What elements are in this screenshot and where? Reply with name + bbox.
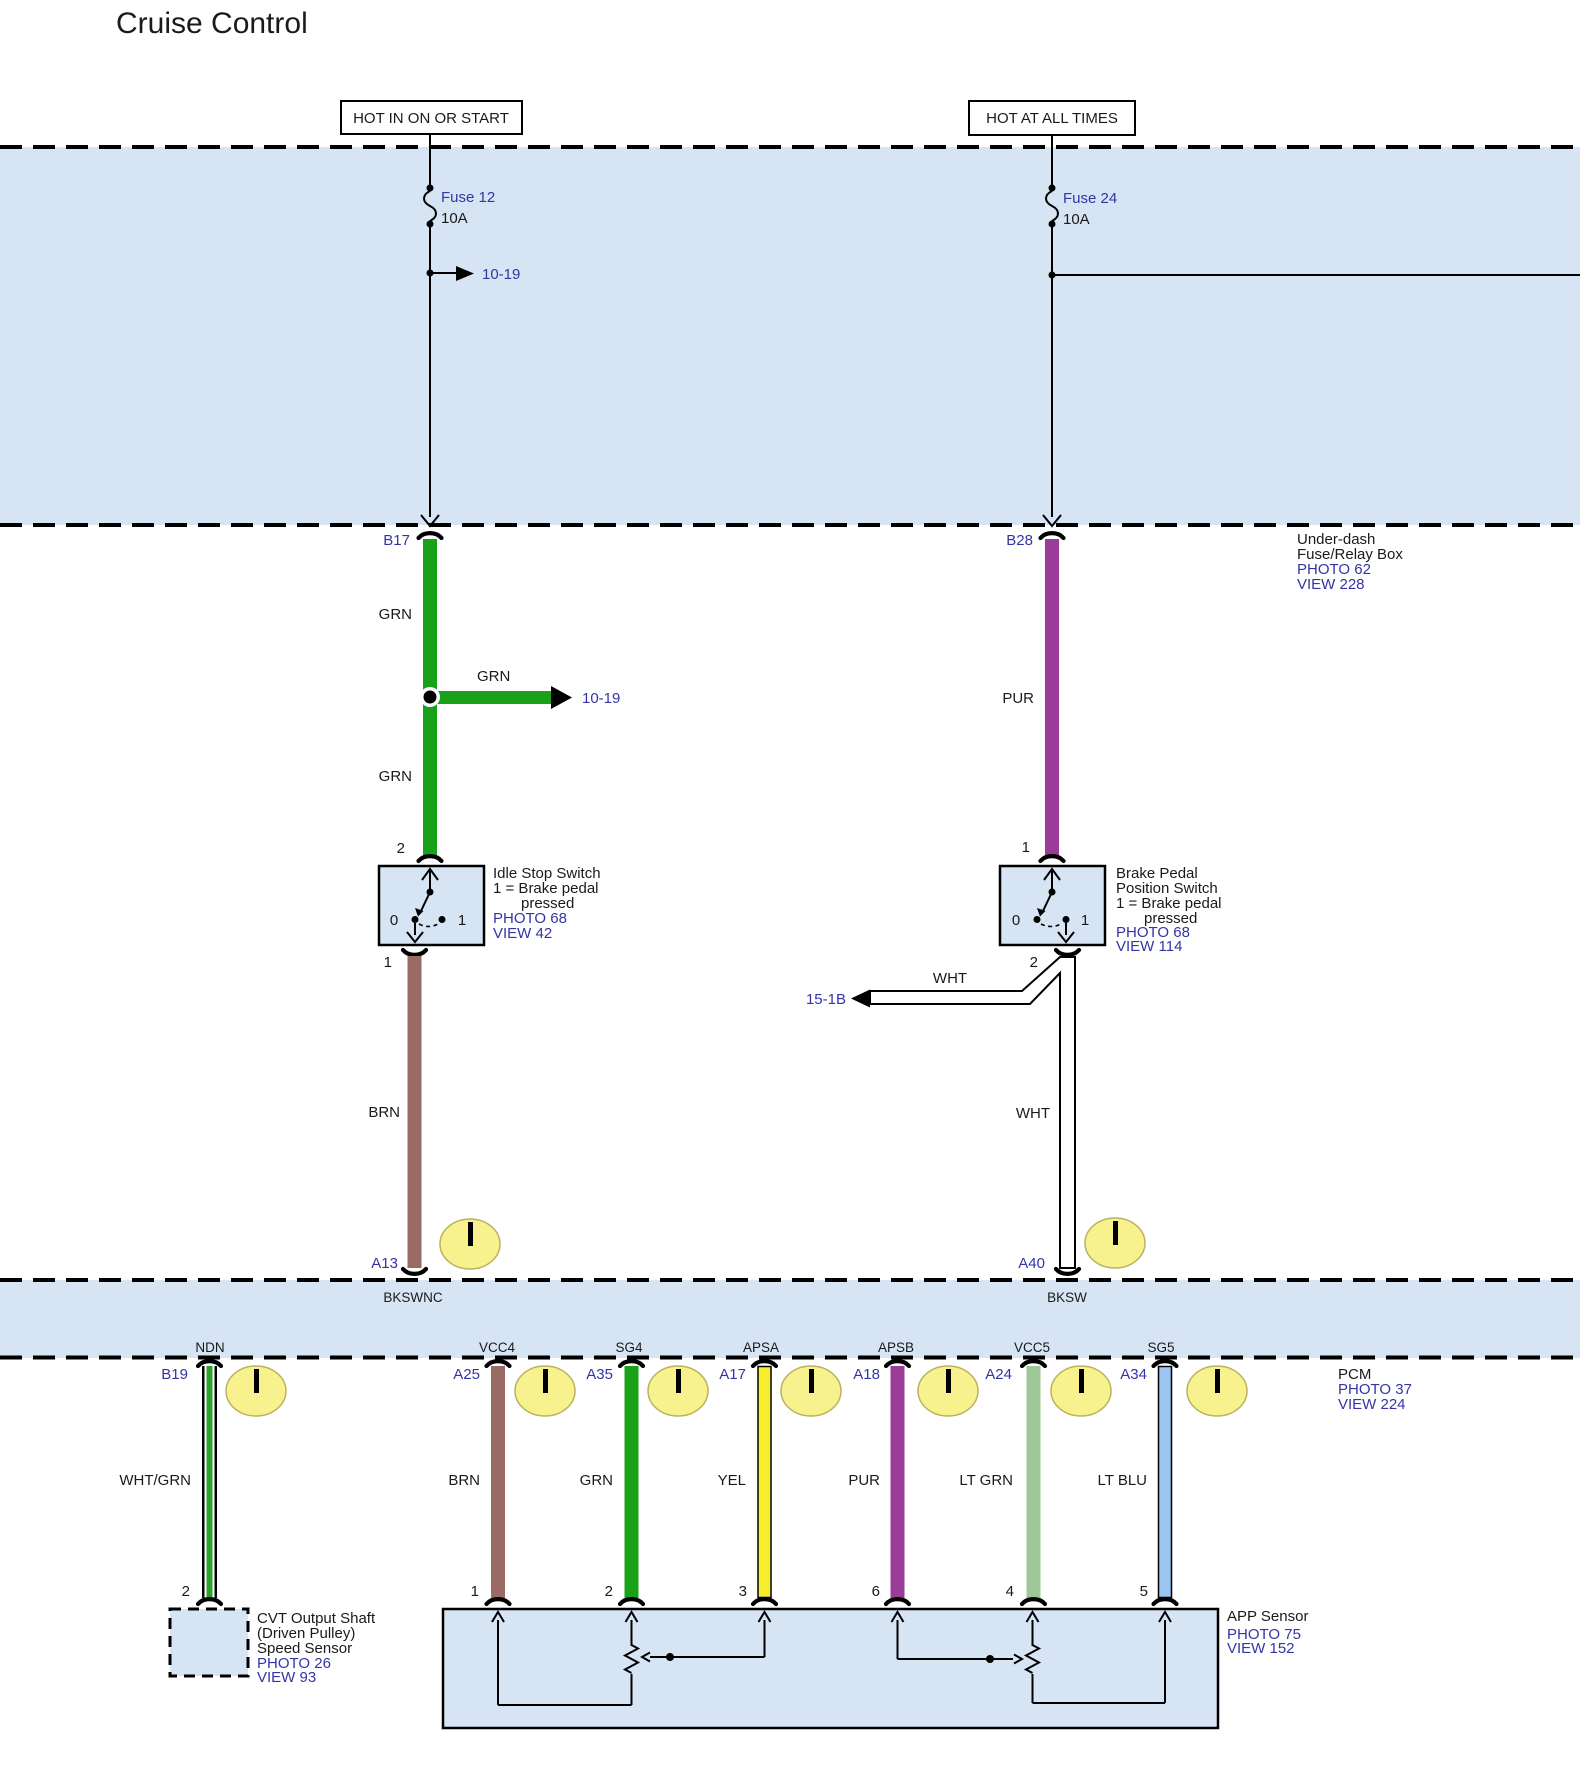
svg-text:1: 1 [471, 1583, 479, 1600]
svg-text:GRN: GRN [379, 768, 412, 785]
svg-text:Fuse 24: Fuse 24 [1063, 190, 1117, 207]
svg-text:APSA: APSA [743, 1340, 779, 1355]
svg-text:BKSWNC: BKSWNC [383, 1290, 443, 1305]
svg-text:A40: A40 [1018, 1255, 1045, 1272]
svg-text:1: 1 [1022, 839, 1030, 856]
svg-text:BKSW: BKSW [1047, 1290, 1087, 1305]
svg-text:PUR: PUR [848, 1472, 880, 1489]
svg-text:WHT/GRN: WHT/GRN [119, 1472, 191, 1489]
svg-text:2: 2 [605, 1583, 613, 1600]
svg-text:1: 1 [384, 954, 392, 971]
svg-text:BRN: BRN [448, 1472, 480, 1489]
svg-text:HOT AT ALL TIMES: HOT AT ALL TIMES [986, 110, 1118, 127]
svg-text:VIEW 114: VIEW 114 [1116, 938, 1182, 955]
svg-text:GRN: GRN [477, 668, 510, 685]
svg-text:NDN: NDN [195, 1340, 224, 1355]
svg-text:A13: A13 [371, 1255, 398, 1272]
svg-text:0: 0 [1012, 912, 1020, 929]
svg-text:0: 0 [390, 912, 398, 929]
svg-text:1: 1 [1081, 912, 1089, 929]
svg-text:B28: B28 [1006, 532, 1033, 549]
svg-text:2: 2 [397, 840, 405, 857]
svg-text:VIEW 224: VIEW 224 [1338, 1396, 1406, 1413]
svg-text:BRN: BRN [368, 1104, 400, 1121]
svg-text:LT GRN: LT GRN [959, 1472, 1013, 1489]
svg-text:15-1B: 15-1B [806, 991, 846, 1008]
svg-text:A34: A34 [1120, 1366, 1147, 1383]
svg-text:Cruise Control: Cruise Control [116, 7, 308, 40]
svg-text:APSB: APSB [878, 1340, 914, 1355]
svg-text:A18: A18 [853, 1366, 880, 1383]
svg-text:4: 4 [1006, 1583, 1014, 1600]
svg-text:10-19: 10-19 [482, 266, 520, 283]
svg-text:WHT: WHT [933, 970, 967, 987]
svg-text:VIEW 228: VIEW 228 [1297, 576, 1365, 593]
svg-text:A17: A17 [719, 1366, 746, 1383]
svg-text:YEL: YEL [718, 1472, 746, 1489]
svg-text:VIEW 152: VIEW 152 [1227, 1640, 1295, 1657]
svg-text:A25: A25 [453, 1366, 480, 1383]
svg-text:APP Sensor: APP Sensor [1227, 1608, 1308, 1625]
svg-text:2: 2 [1030, 954, 1038, 971]
svg-text:GRN: GRN [379, 606, 412, 623]
svg-text:A35: A35 [586, 1366, 613, 1383]
svg-text:2: 2 [182, 1583, 190, 1600]
svg-text:A24: A24 [985, 1366, 1012, 1383]
svg-text:B17: B17 [383, 532, 410, 549]
svg-text:10A: 10A [441, 210, 468, 227]
svg-text:1: 1 [458, 912, 466, 929]
svg-text:10A: 10A [1063, 211, 1090, 228]
svg-text:SG4: SG4 [615, 1340, 643, 1355]
svg-text:GRN: GRN [580, 1472, 613, 1489]
svg-text:VCC4: VCC4 [479, 1340, 516, 1355]
svg-text:B19: B19 [161, 1366, 188, 1383]
svg-text:PUR: PUR [1002, 690, 1034, 707]
svg-text:SG5: SG5 [1147, 1340, 1174, 1355]
svg-text:5: 5 [1140, 1583, 1148, 1600]
svg-text:HOT IN ON OR START: HOT IN ON OR START [353, 110, 509, 127]
svg-text:VIEW 42: VIEW 42 [493, 925, 552, 942]
svg-text:VIEW 93: VIEW 93 [257, 1669, 316, 1686]
svg-text:VCC5: VCC5 [1014, 1340, 1050, 1355]
svg-text:WHT: WHT [1016, 1105, 1050, 1122]
svg-text:Fuse 12: Fuse 12 [441, 189, 495, 206]
svg-text:3: 3 [739, 1583, 747, 1600]
svg-text:LT BLU: LT BLU [1098, 1472, 1147, 1489]
svg-text:6: 6 [872, 1583, 880, 1600]
svg-text:10-19: 10-19 [582, 690, 620, 707]
